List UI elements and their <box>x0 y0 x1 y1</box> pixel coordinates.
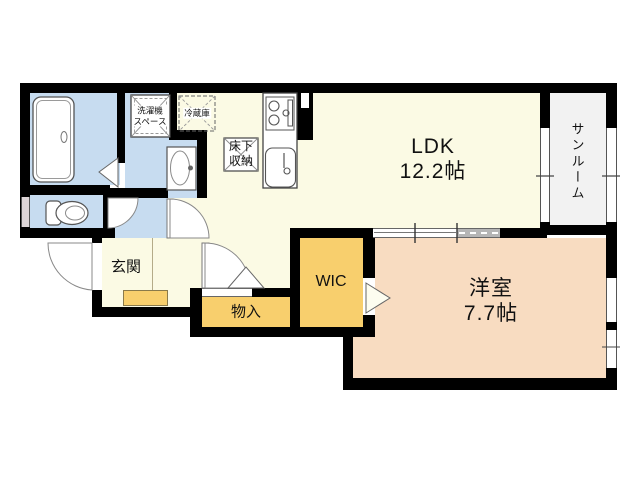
wall <box>606 322 617 330</box>
wall <box>540 93 550 128</box>
label-refrigerator: 冷蔵庫 <box>183 108 211 119</box>
label-sunroom: サンルーム <box>568 122 587 202</box>
label-entrance: 玄関 <box>111 256 141 277</box>
hall-vestibule <box>113 198 168 238</box>
entrance-door-opening <box>92 243 102 290</box>
underfloor-line1: 床下 <box>229 139 253 154</box>
entrance-door-arc <box>48 243 92 290</box>
washer-line2: スペース <box>134 116 167 127</box>
sliding-door-panel-1 <box>373 228 415 238</box>
wall <box>103 195 113 238</box>
wall <box>20 228 115 238</box>
washer-line1: 洗濯機 <box>134 106 167 117</box>
wall <box>92 290 102 317</box>
wall <box>117 93 125 163</box>
western-size: 7.7帖 <box>464 301 518 326</box>
wall <box>606 83 617 128</box>
wall <box>343 378 617 390</box>
label-storage: 物入 <box>231 301 261 322</box>
kitchen-stub-notch <box>301 93 309 108</box>
wall <box>343 330 353 378</box>
wic-door-opening <box>363 278 375 315</box>
wall <box>20 185 110 195</box>
wall <box>92 307 200 317</box>
sliding-door-panel-2 <box>415 228 457 238</box>
ldk-size: 12.2帖 <box>400 159 467 184</box>
toilet-window <box>21 197 30 227</box>
hall-upper <box>168 198 290 238</box>
room-toilet <box>30 195 103 228</box>
wall <box>606 222 617 278</box>
wall <box>197 140 207 198</box>
entrance-divider-line <box>152 238 153 290</box>
wall <box>252 288 300 297</box>
western-window-1 <box>606 278 617 322</box>
room-bathroom <box>30 93 120 185</box>
label-washer-space: 洗濯機 スペース <box>133 106 168 127</box>
wall <box>110 188 168 198</box>
label-underfloor-storage: 床下 収納 <box>229 139 253 169</box>
ldk-name: LDK <box>400 134 467 159</box>
label-ldk: LDK 12.2帖 <box>400 134 467 184</box>
wall <box>290 228 300 327</box>
western-window-2 <box>606 330 617 368</box>
wall-kitchen-stub <box>297 83 313 140</box>
entrance-step <box>123 290 168 306</box>
floor-plan: LDK 12.2帖 洋室 7.7帖 サンルーム WIC 物入 玄関 床下 収納 … <box>0 0 640 480</box>
wall <box>193 228 205 238</box>
sunroom-window-right <box>606 128 617 222</box>
sunroom-window-left <box>540 128 550 222</box>
western-name: 洋室 <box>464 276 518 301</box>
label-western-room: 洋室 7.7帖 <box>464 276 518 326</box>
underfloor-line2: 収納 <box>229 154 253 169</box>
wall <box>20 83 617 93</box>
label-wic: WIC <box>315 273 346 291</box>
sliding-door-track-line <box>374 232 456 233</box>
room-western-ext <box>353 337 375 380</box>
storage-door-threshold <box>202 288 252 297</box>
wall <box>169 130 207 140</box>
sliding-door-dashed-line <box>459 232 498 234</box>
